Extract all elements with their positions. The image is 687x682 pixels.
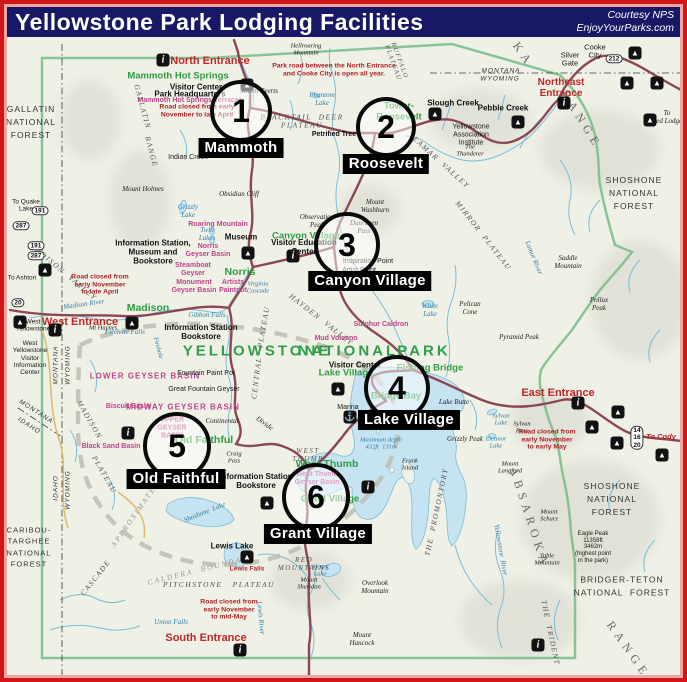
lodging-label-old-faithful[interactable]: Old Faithful (127, 469, 226, 489)
campground-icon: ▲ (261, 497, 274, 510)
campground-icon: ▲ (644, 114, 657, 127)
info-station-icon: i (234, 644, 247, 657)
campground-icon: ▲ (512, 116, 525, 129)
campground-icon: ▲ (656, 449, 669, 462)
campground-icon: ▲ (586, 421, 599, 434)
campground-icon: ▲ (629, 47, 642, 60)
lodging-label-lake-village[interactable]: Lake Village (358, 410, 460, 430)
credits: Courtesy NPS EnjoyYourParks.com (577, 9, 680, 34)
map-frame: Yellowstone Park Lodging Facilities Cour… (0, 0, 687, 682)
route-shield-20: 20 (11, 298, 24, 307)
lodging-marker-3[interactable]: 3 (314, 212, 380, 278)
credit-line-1: Courtesy NPS (577, 9, 674, 22)
campground-icon: ▲ (621, 77, 634, 90)
lodging-label-grant-village[interactable]: Grant Village (264, 524, 372, 544)
info-station-icon: i (122, 427, 135, 440)
lodging-marker-1[interactable]: 1 (210, 80, 272, 142)
campground-icon: ▲ (241, 551, 254, 564)
info-station-icon: i (49, 324, 62, 337)
lodging-marker-2[interactable]: 2 (356, 97, 416, 157)
campground-icon: ▲ (611, 437, 624, 450)
lodging-marker-6[interactable]: 6 (282, 463, 350, 531)
campground-icon: ▲ (332, 383, 345, 396)
campground-icon: ▲ (126, 317, 139, 330)
map-art (7, 37, 680, 675)
route-shield-287: 287 (28, 251, 45, 260)
credit-line-2: EnjoyYourParks.com (577, 22, 674, 35)
campground-icon: ▲ (651, 77, 664, 90)
lodging-label-roosevelt[interactable]: Roosevelt (343, 154, 429, 174)
campground-icon: ▲ (612, 406, 625, 419)
route-shield-287: 287 (13, 221, 30, 230)
route-shield-212: 212 (606, 54, 623, 63)
info-station-icon: i (532, 639, 545, 652)
campground-icon: ▲ (429, 108, 442, 121)
info-station-icon: i (157, 54, 170, 67)
info-station-icon: i (558, 97, 571, 110)
title-bar: Yellowstone Park Lodging Facilities Cour… (7, 7, 680, 37)
campground-icon: ▲ (242, 247, 255, 260)
route-shield-191: 191 (32, 206, 49, 215)
campground-icon: ▲ (39, 264, 52, 277)
info-station-icon: i (287, 250, 300, 263)
route-shield-14: 14 16 20 (630, 426, 643, 450)
marina-icon: ⚓ (344, 411, 357, 424)
info-station-icon: i (572, 397, 585, 410)
lodging-label-mammoth[interactable]: Mammoth (199, 138, 284, 158)
campground-icon: ▲ (14, 316, 27, 329)
route-shield-191: 191 (28, 241, 45, 250)
lodging-label-canyon-village[interactable]: Canyon Village (308, 271, 431, 291)
info-station-icon: i (362, 481, 375, 494)
stage: Yellowstone Park Lodging Facilities Cour… (7, 7, 680, 675)
page-title: Yellowstone Park Lodging Facilities (7, 9, 424, 36)
park-map: North EntranceNortheast EntranceWest Ent… (7, 37, 680, 675)
